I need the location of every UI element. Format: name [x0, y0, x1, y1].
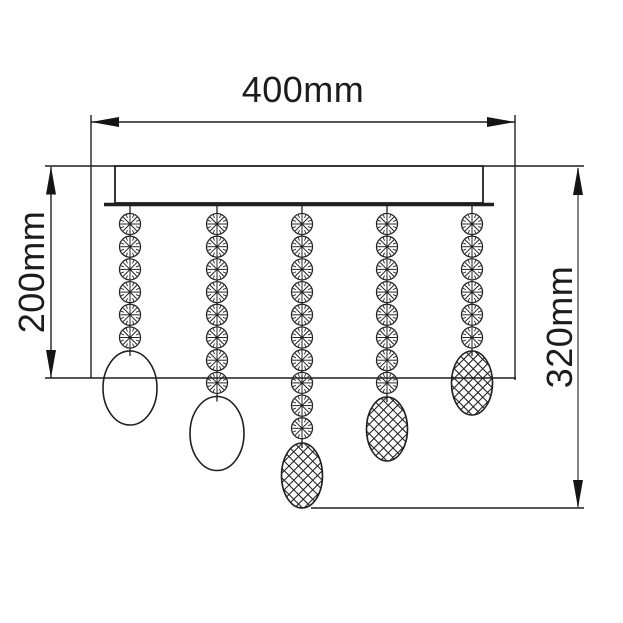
- crystal-bead: [462, 327, 483, 348]
- crystal-strand: [152, 205, 445, 556]
- crystal-bead: [292, 372, 313, 393]
- crystal-bead: [207, 282, 228, 303]
- dimension-drawing: 400mm 200mm 320mm: [0, 0, 623, 623]
- crystal-bead: [292, 418, 313, 439]
- crystal-bead: [292, 259, 313, 280]
- crystal-bead: [377, 236, 398, 257]
- crystal-bead: [292, 395, 313, 416]
- dimension-arrowhead: [46, 350, 56, 378]
- crystal-bead: [207, 350, 228, 371]
- ceiling-plate-body: [115, 166, 483, 203]
- crystal-strand: [190, 205, 244, 471]
- crystal-bead: [120, 236, 141, 257]
- dimension-label-right-drop: 320mm: [542, 266, 578, 389]
- crystal-bead: [207, 304, 228, 325]
- crystal-bead: [120, 327, 141, 348]
- crystal-bead: [292, 304, 313, 325]
- crystal-bead: [377, 304, 398, 325]
- crystal-bead: [462, 282, 483, 303]
- dimension-arrowhead: [573, 480, 583, 508]
- dimension-arrowhead: [573, 167, 583, 195]
- crystal-bead: [462, 214, 483, 235]
- crystal-bead: [377, 327, 398, 348]
- dimension-arrowhead: [487, 117, 515, 127]
- crystal-bead: [462, 259, 483, 280]
- crystal-bead: [377, 259, 398, 280]
- crystal-bead: [207, 327, 228, 348]
- crystal-bead: [462, 304, 483, 325]
- crystal-strand: [103, 205, 157, 425]
- crystal-bead: [292, 350, 313, 371]
- crystal-bead: [377, 282, 398, 303]
- crystal-bead: [462, 236, 483, 257]
- dimension-arrowhead: [91, 117, 119, 127]
- dimension-arrowhead: [46, 167, 56, 195]
- crystal-bead: [207, 214, 228, 235]
- ceiling-plate: [104, 166, 494, 205]
- crystal-bead: [120, 259, 141, 280]
- crystal-bead: [292, 282, 313, 303]
- crystal-bead: [207, 259, 228, 280]
- crystal-strand: [237, 205, 530, 509]
- crystal-bead: [377, 214, 398, 235]
- crystal-bead: [292, 236, 313, 257]
- crystal-bead: [377, 350, 398, 371]
- crystal-bead: [207, 236, 228, 257]
- crystal-bead: [377, 372, 398, 393]
- crystal-bead: [207, 372, 228, 393]
- crystal-bead: [120, 282, 141, 303]
- dimension-label-left-drop: 200mm: [14, 211, 50, 334]
- crystal-bead: [120, 304, 141, 325]
- dimension-label-width: 400mm: [91, 72, 515, 108]
- crystal-bead: [292, 214, 313, 235]
- crystal-bead: [120, 214, 141, 235]
- pendant-plain-oval: [103, 351, 157, 425]
- pendant-plain-oval: [190, 397, 244, 471]
- crystal-bead: [292, 327, 313, 348]
